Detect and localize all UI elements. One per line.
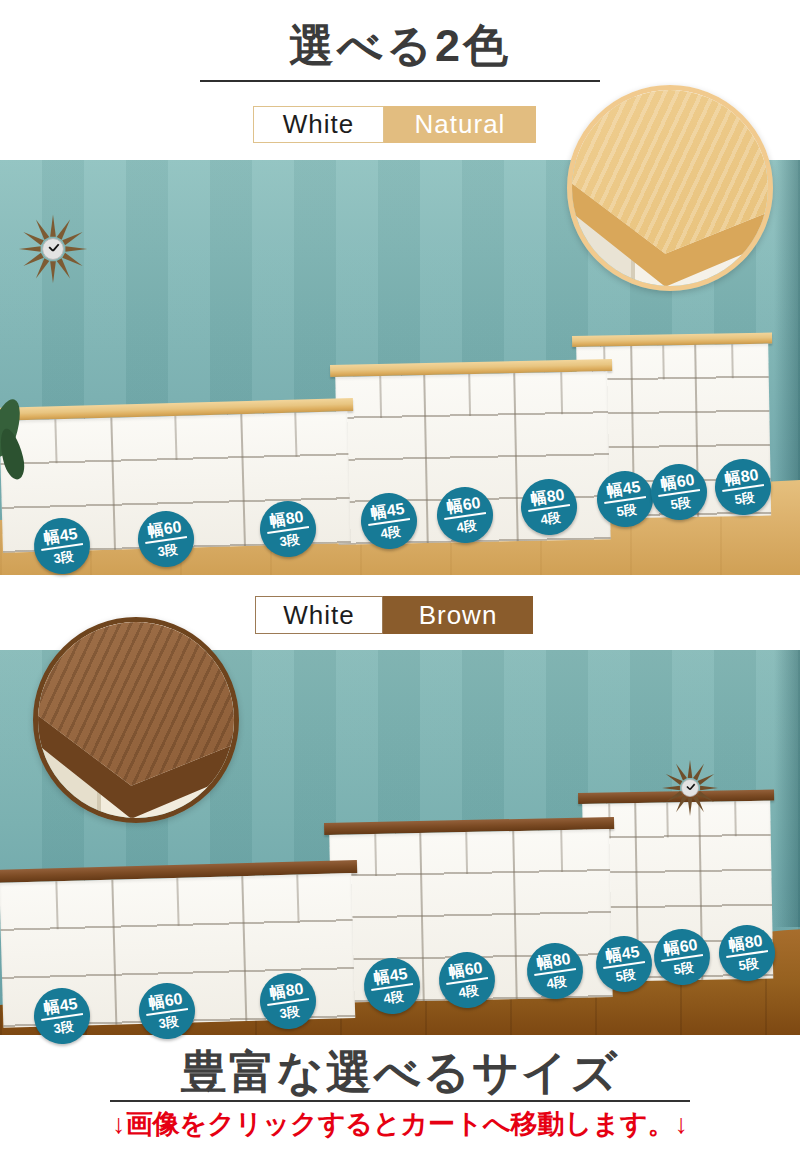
- wall-corner-shadow: [774, 650, 800, 927]
- drawer-seam: [55, 881, 58, 929]
- drawer-divider: [419, 833, 425, 1001]
- title-underline: [200, 80, 600, 82]
- footer-underline: [110, 1100, 690, 1102]
- color-tabs-natural-row: White Natural: [253, 106, 536, 143]
- drawer-seam: [734, 801, 737, 836]
- drawer-divider: [241, 876, 247, 1021]
- drawer-seam: [465, 832, 468, 874]
- drawer-seam: [379, 376, 382, 418]
- footer-title: 豊富な選べるサイズ: [0, 1042, 800, 1104]
- drawer-divider: [512, 831, 518, 999]
- drawer-divider: [240, 414, 246, 546]
- drawer-seam: [294, 413, 297, 457]
- product-info-graphic: 選べる2色 White Natural: [0, 0, 800, 1159]
- drawer-seam: [54, 419, 57, 463]
- sunburst-clock-icon: [659, 757, 721, 819]
- color-tabs-brown-row: White Brown: [255, 596, 533, 634]
- drawer-seam: [560, 830, 563, 872]
- drawer-seam: [662, 345, 665, 379]
- tab-white[interactable]: White: [253, 106, 384, 143]
- drawer-seam: [174, 416, 177, 460]
- drawer-seam: [560, 372, 563, 414]
- cart-link-note: ↓画像をクリックするとカートへ移動します。↓: [0, 1106, 800, 1142]
- drawer-seam: [296, 875, 299, 923]
- drawer-divider: [423, 375, 429, 543]
- drawer-seam: [176, 878, 179, 926]
- natural-top-closeup-inset: [567, 85, 773, 291]
- drawer-seam: [374, 834, 377, 876]
- brown-top-closeup-inset: [33, 617, 239, 823]
- page-title: 選べる2色: [0, 16, 800, 76]
- tab-natural[interactable]: Natural: [384, 106, 536, 143]
- tab-brown[interactable]: Brown: [383, 596, 533, 634]
- wall-corner-shadow: [774, 160, 800, 484]
- drawer-divider: [110, 418, 116, 550]
- drawer-divider: [111, 880, 117, 1025]
- drawer-seam: [731, 344, 734, 378]
- drawer-seam: [468, 374, 471, 416]
- tab-white[interactable]: White: [255, 596, 383, 634]
- drawer-divider: [513, 373, 519, 541]
- sunburst-clock-icon: [15, 211, 91, 287]
